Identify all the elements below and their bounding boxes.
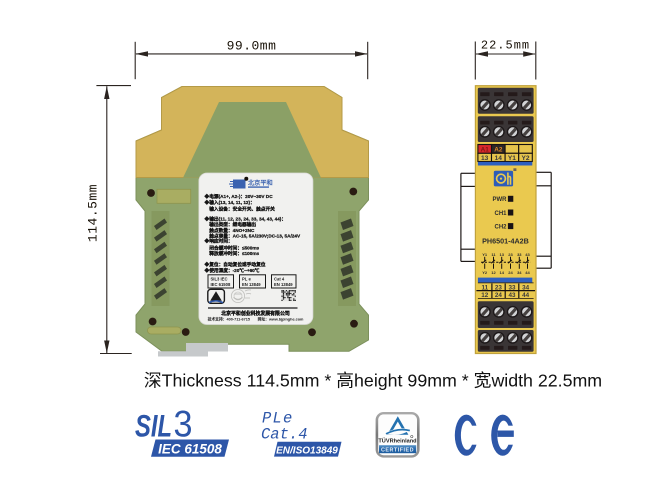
svg-text:◆使用温度：-20℃~+60℃: ◆使用温度：-20℃~+60℃ xyxy=(204,267,260,274)
svg-text:12: 12 xyxy=(491,270,496,275)
svg-text:Y2: Y2 xyxy=(521,155,529,162)
svg-text:◆电源(A1+, A2-)：20V~30V DC: ◆电源(A1+, A2-)：20V~30V DC xyxy=(204,193,274,200)
svg-text:24: 24 xyxy=(495,292,503,299)
svg-text:IEC 61508: IEC 61508 xyxy=(158,442,222,457)
svg-text:PWR: PWR xyxy=(493,197,508,203)
svg-text:Cat.4: Cat.4 xyxy=(261,426,308,444)
svg-text:44: 44 xyxy=(522,292,530,299)
svg-text:A2: A2 xyxy=(494,147,503,154)
svg-text:33: 33 xyxy=(508,284,516,291)
svg-text:43: 43 xyxy=(525,252,530,257)
svg-text:34: 34 xyxy=(517,270,522,275)
svg-text:EN 13849: EN 13849 xyxy=(242,282,261,287)
svg-text:输入设备：安全开关、触点开关: 输入设备：安全开关、触点开关 xyxy=(205,205,276,212)
svg-text:23: 23 xyxy=(495,284,503,291)
svg-text:14: 14 xyxy=(495,155,503,162)
svg-text:输出类型：继电器输出: 输出类型：继电器输出 xyxy=(205,221,257,228)
svg-text:IEC 61508: IEC 61508 xyxy=(211,282,231,287)
svg-text:Y1: Y1 xyxy=(482,252,488,257)
svg-text:北京平和创业科技发展有限公司: 北京平和创业科技发展有限公司 xyxy=(221,310,290,317)
svg-text:11: 11 xyxy=(481,284,488,291)
svg-text:43: 43 xyxy=(508,292,516,299)
svg-text:CERTIFIED: CERTIFIED xyxy=(381,448,414,454)
svg-text:Cat 4: Cat 4 xyxy=(274,276,285,281)
svg-text:深Thickness 114.5mm * 高height 9: 深Thickness 114.5mm * 高height 99mm * 宽wid… xyxy=(144,371,602,391)
svg-text:114.5mm: 114.5mm xyxy=(86,184,101,242)
svg-text:A1: A1 xyxy=(481,147,490,154)
svg-text:PH6501-4A2B: PH6501-4A2B xyxy=(482,236,529,245)
svg-text:SIL: SIL xyxy=(135,407,172,443)
svg-text:99.0mm: 99.0mm xyxy=(227,39,277,54)
svg-text:北京平和: 北京平和 xyxy=(248,179,273,187)
svg-text:EN 13849: EN 13849 xyxy=(274,282,293,287)
svg-text:◆输入(13, 14, 11, 12)：: ◆输入(13, 14, 11, 12)： xyxy=(204,199,255,206)
svg-text:PL e: PL e xyxy=(242,276,251,281)
svg-text:13: 13 xyxy=(499,252,504,257)
svg-text:Y1: Y1 xyxy=(508,155,516,162)
svg-text:CH1: CH1 xyxy=(494,211,507,217)
svg-text:◆复位：自动复位或手动复位: ◆复位：自动复位或手动复位 xyxy=(204,261,266,268)
svg-text:TÜVRheinland: TÜVRheinland xyxy=(378,438,417,445)
svg-text:3: 3 xyxy=(174,404,193,445)
svg-text:22.5mm: 22.5mm xyxy=(481,39,530,53)
svg-text:◆响应时间：: ◆响应时间： xyxy=(204,238,233,245)
svg-text:技术支持：400-711-6715 网址：www.bjpi: 技术支持：400-711-6715 网址：www.bjpinghe.com xyxy=(208,317,304,322)
svg-text:13: 13 xyxy=(481,155,489,162)
svg-text:Y2: Y2 xyxy=(482,270,488,275)
svg-text:23: 23 xyxy=(508,252,513,257)
svg-text:CH2: CH2 xyxy=(494,225,507,231)
svg-text:12: 12 xyxy=(481,292,489,299)
svg-text:33: 33 xyxy=(517,252,522,257)
svg-text:SIL3 IEC: SIL3 IEC xyxy=(211,276,228,281)
svg-text:24: 24 xyxy=(508,270,513,275)
svg-text:34: 34 xyxy=(522,284,530,291)
svg-text:EN/ISO13849: EN/ISO13849 xyxy=(276,445,338,456)
svg-text:释放缓冲时间：≤100ms: 释放缓冲时间：≤100ms xyxy=(205,250,260,257)
svg-text:44: 44 xyxy=(525,270,530,275)
svg-text:14: 14 xyxy=(499,270,504,275)
